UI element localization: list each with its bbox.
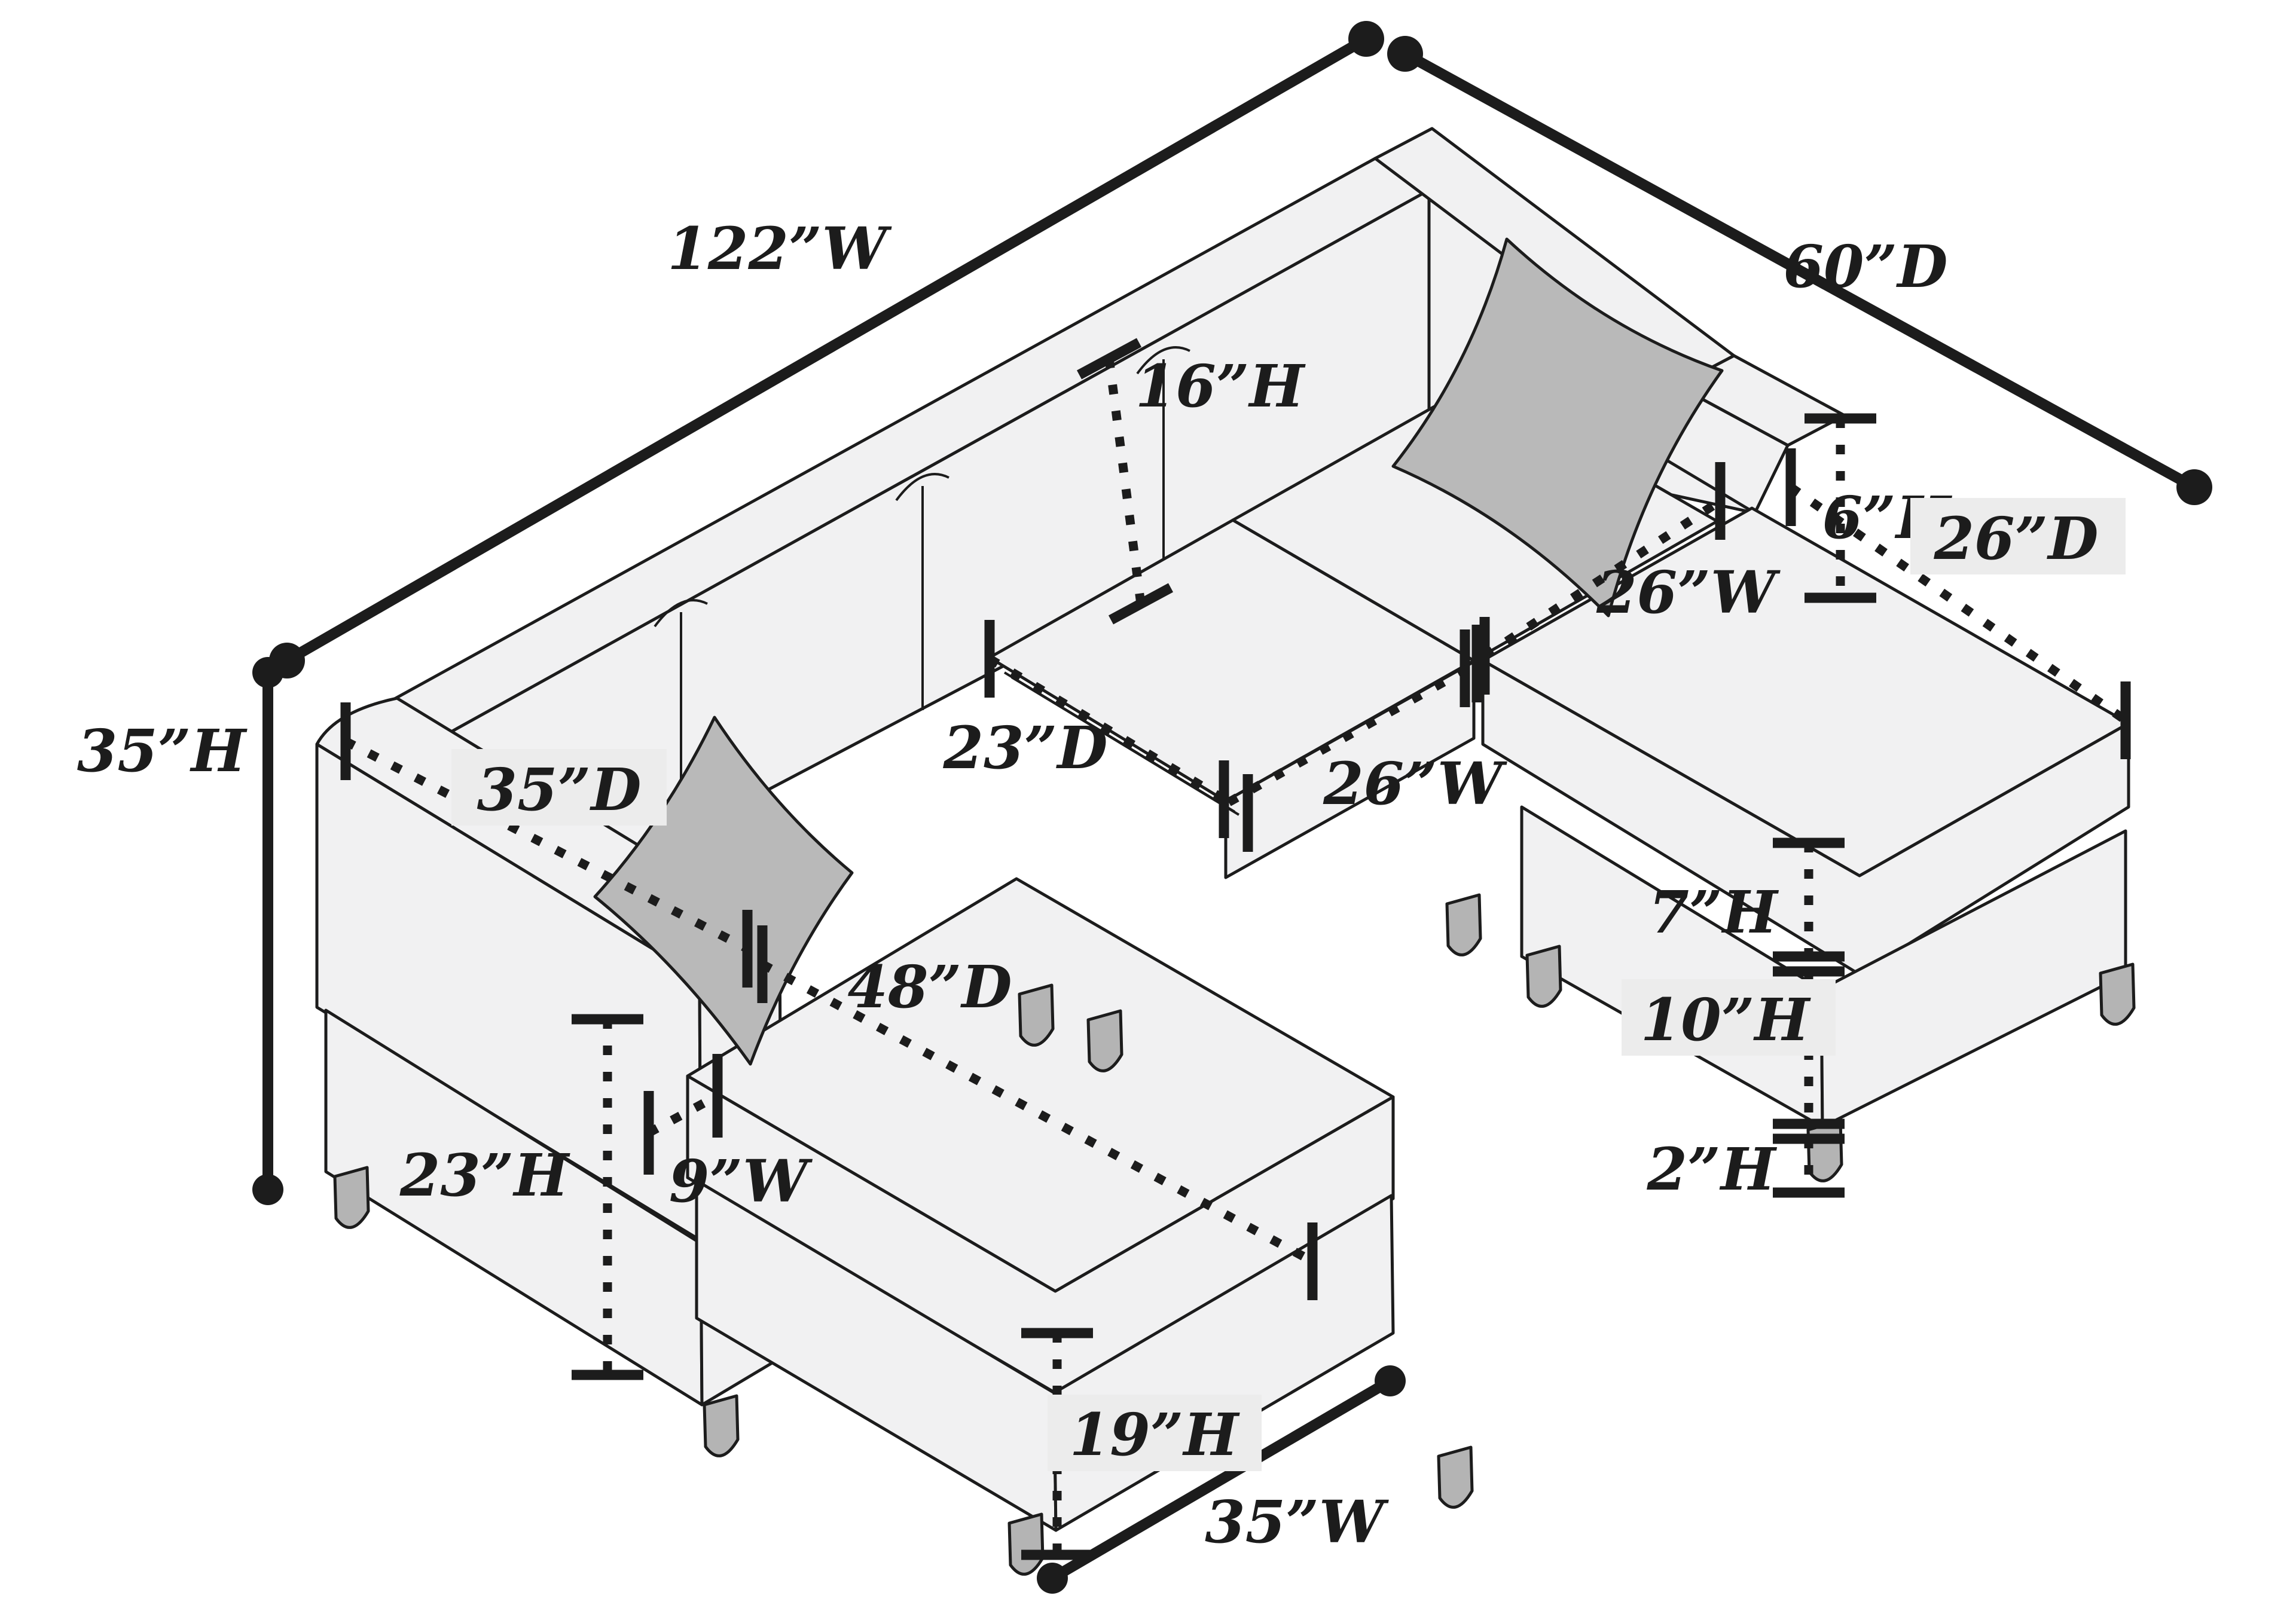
sofa-leg — [1019, 985, 1053, 1045]
dim-26w-center-label: 26”W — [1323, 750, 1507, 818]
sofa-leg — [1009, 1514, 1043, 1574]
dim-endpoint-dot — [1037, 1563, 1068, 1594]
dim-19h-label: 19”H — [1070, 1401, 1241, 1469]
dim-26w-right-label: 26”W — [1596, 558, 1781, 626]
dim-endpoint-dot — [2176, 469, 2212, 505]
dim-23h-label: 23”H — [399, 1141, 571, 1209]
dim-endpoint-dot — [1387, 36, 1423, 72]
sofa-leg — [1088, 1011, 1122, 1071]
dim-35h: 35”H — [77, 657, 283, 1205]
sofa-dimension-diagram: 122”W 60”D 35”H 35”W 16”H — [0, 0, 2296, 1620]
sofa-leg — [1447, 895, 1480, 955]
dim-35h-label: 35”H — [77, 717, 248, 785]
dim-35d-label: 35”D — [477, 756, 642, 824]
dim-endpoint-dot — [252, 1174, 283, 1205]
dim-endpoint-dot — [1375, 1365, 1406, 1396]
dim-26d-label: 26”D — [1934, 505, 2099, 573]
sofa-leg — [1439, 1447, 1472, 1507]
dim-10h-label: 10”H — [1641, 986, 1812, 1054]
sofa-leg — [335, 1167, 368, 1227]
sofa-leg — [2100, 964, 2134, 1024]
dim-7h-label: 7”H — [1649, 878, 1779, 946]
dim-9w-label: 9”W — [669, 1147, 813, 1215]
dim-23d-label: 23”D — [943, 714, 1108, 782]
dim-endpoint-dot — [252, 657, 283, 688]
dim-2h-label: 2”H — [1647, 1135, 1778, 1203]
sofa-leg — [704, 1396, 738, 1456]
dim-35w-label: 35”W — [1205, 1488, 1389, 1556]
dim-16h-label: 16”H — [1135, 352, 1306, 420]
dim-122w-label: 122”W — [667, 215, 891, 283]
dim-48d-label: 48”D — [848, 953, 1012, 1021]
dim-60d-label: 60”D — [1784, 233, 1948, 301]
sofa-leg — [1527, 946, 1561, 1006]
dim-endpoint-dot — [1348, 21, 1384, 57]
